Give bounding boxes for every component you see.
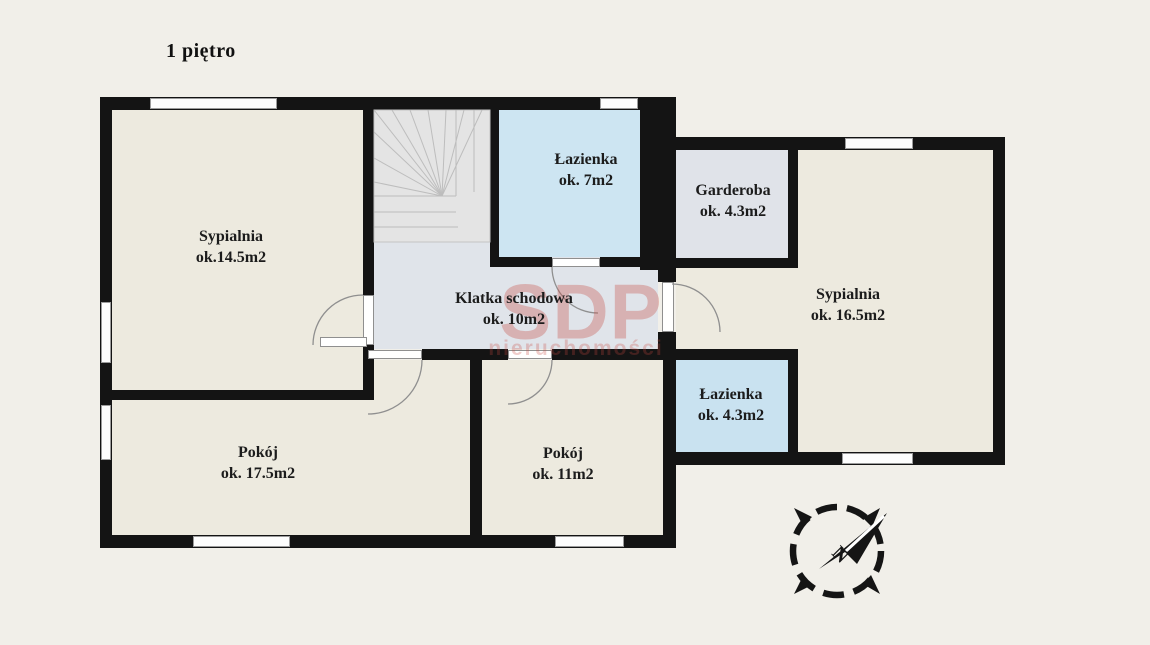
room-name: Klatka schodowa — [455, 288, 573, 309]
door-leaf — [368, 350, 422, 359]
room-name: Garderoba — [695, 180, 770, 201]
room-area: ok. 7m2 — [554, 170, 617, 191]
wall — [490, 110, 499, 267]
window — [101, 405, 111, 460]
room-label-sypialnia-2: Sypialnia ok. 16.5m2 — [811, 284, 885, 326]
room-label-lazienka-1: Łazienka ok. 7m2 — [554, 149, 617, 191]
wall — [363, 110, 374, 295]
wall — [600, 257, 640, 267]
compass-tick-icon — [863, 575, 880, 594]
window — [193, 536, 290, 547]
wall — [788, 137, 798, 268]
wall — [993, 137, 1005, 465]
door-leaf — [552, 258, 600, 267]
room-area: ok. 4.3m2 — [695, 201, 770, 222]
window — [555, 536, 624, 547]
compass-needle-icon — [819, 513, 887, 569]
compass-tick-icon — [863, 508, 880, 527]
wall — [552, 349, 798, 360]
room-label-pokoj-1: Pokój ok. 17.5m2 — [221, 442, 295, 484]
room-label-lazienka-2: Łazienka ok. 4.3m2 — [698, 384, 764, 426]
window — [842, 453, 913, 464]
compass-north-label: N — [827, 542, 853, 568]
wall — [490, 257, 552, 267]
wall — [422, 349, 508, 360]
wall — [470, 360, 482, 536]
room-label-klatka-schodowa: Klatka schodowa ok. 10m2 — [455, 288, 573, 330]
wall — [640, 258, 798, 268]
door-leaf — [662, 282, 674, 332]
compass-icon: N — [793, 507, 887, 595]
door-leaf — [508, 350, 552, 359]
room-area: ok. 10m2 — [455, 309, 573, 330]
room-name: Pokój — [221, 442, 295, 463]
page-title: 1 piętro — [166, 40, 236, 63]
window — [101, 302, 111, 363]
wall — [640, 97, 676, 270]
compass-tick-icon — [794, 508, 812, 526]
room-label-garderoba: Garderoba ok. 4.3m2 — [695, 180, 770, 222]
window — [845, 138, 913, 149]
room-area: ok. 4.3m2 — [698, 405, 764, 426]
room-area: ok. 11m2 — [532, 464, 593, 485]
room-name: Sypialnia — [196, 226, 266, 247]
wall — [663, 452, 1005, 465]
room-area: ok. 17.5m2 — [221, 463, 295, 484]
room-name: Łazienka — [698, 384, 764, 405]
room-name: Sypialnia — [811, 284, 885, 305]
room-label-pokoj-2: Pokój ok. 11m2 — [532, 443, 593, 485]
room-area: ok. 16.5m2 — [811, 305, 885, 326]
window — [150, 98, 277, 109]
wall — [658, 270, 676, 282]
window — [600, 98, 638, 109]
room-name: Łazienka — [554, 149, 617, 170]
floor-plan-page: 1 piętro — [0, 0, 1150, 645]
room-area: ok.14.5m2 — [196, 247, 266, 268]
wall — [100, 390, 374, 400]
compass-tick-icon — [794, 576, 812, 594]
door-leaf — [320, 337, 367, 347]
room-name: Pokój — [532, 443, 593, 464]
wall — [788, 349, 798, 465]
room-label-sypialnia-1: Sypialnia ok.14.5m2 — [196, 226, 266, 268]
wall — [640, 137, 1005, 150]
